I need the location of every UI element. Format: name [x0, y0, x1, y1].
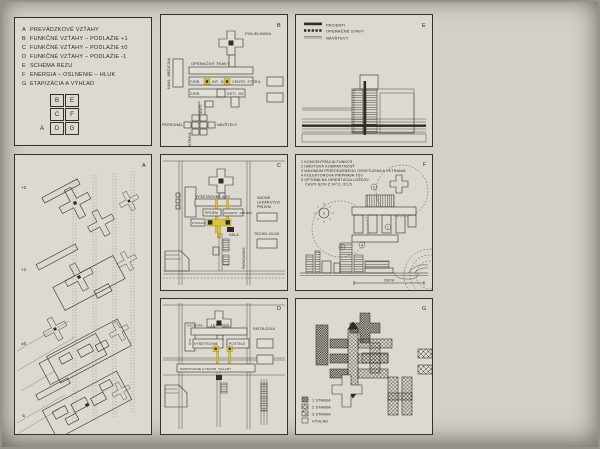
entry-cluster: PACIENTI PERSONÁL NÁVŠTEVY STRAVA: [162, 101, 238, 146]
label-prijem: PRÍJEM: [205, 211, 218, 215]
phasing-diagram: [316, 313, 432, 415]
vyhlad-swatch: [302, 418, 308, 423]
label-personal: PERSONÁL: [162, 123, 183, 127]
plan-buildings: RTG KUCHYŇA LEKÁREŇ VYŠETROVNE POSTELE P…: [165, 311, 275, 427]
panel-g: G: [295, 298, 433, 435]
panel-b: B POLIKLINIKA OPERAČNÝ TRAKT NUKL. MEDIC…: [160, 14, 288, 147]
legend-stavba3: 3 STAVBA: [312, 413, 331, 417]
scale-bar: 200 M: [354, 279, 424, 286]
main-wings: OPERAČNÝ TRAKT NUKL. MEDICÍNA CHIR. INT.…: [167, 57, 283, 107]
level-label-zero: ±0: [21, 341, 27, 346]
label-patologia: PATOLÓGIA: [253, 326, 275, 331]
axonometric-levels: [17, 179, 142, 434]
label-kuchyna: KUCHYŇA: [187, 323, 203, 328]
index-label: FUNKČNÉ VZŤAHY – PODLAŽIE -1: [30, 53, 126, 62]
index-item: BFUNKČNÉ VZŤAHY – PODLAŽIE +1: [22, 35, 146, 44]
notes-list: 1 KONCENTRÁCIA FUNKCIÍ 2 HMOTOVÁ KOMPAKT…: [301, 160, 406, 187]
label-urgent-prijem: URGENT. PRÍJEM: [224, 211, 252, 215]
grid-cell-a: A: [35, 122, 49, 135]
index-key: D: [22, 53, 30, 62]
note-5b: ČASTI SZ/V-Z 24°/J, 3/1,5: [305, 182, 352, 187]
grid-cell-c: C: [50, 108, 64, 121]
stavba1-swatch: [302, 397, 308, 402]
sheet-index-list: APREVÁDZKOVÉ VZŤAHY BFUNKČNÉ VZŤAHY – PO…: [15, 18, 151, 89]
index-item: ESCHÉMA REZU: [22, 62, 146, 71]
index-key: F: [22, 71, 30, 80]
panel-letter: G: [422, 306, 426, 312]
label-sudne: SÚDNE: [257, 195, 271, 200]
stavba2-swatch: [302, 404, 308, 409]
label-parkovanie: PARKOVANIE: [242, 247, 246, 269]
grid-cell-empty: [35, 108, 49, 121]
index-item: FENERGIA – OSLNENIE – HLUK: [22, 71, 146, 80]
label-poliklinika: POLIKLINIKA: [245, 31, 271, 36]
index-panel: APREVÁDZKOVÉ VZŤAHY BFUNKČNÉ VZŤAHY – PO…: [14, 17, 152, 146]
index-item: CFUNKČNÉ VZŤAHY – PODLAŽIE ±0: [22, 44, 146, 53]
marker-2: 2: [373, 185, 375, 189]
note-3: 3 MAXIMUM PRIRODZENÉHO OSVETLENIA A VETR…: [301, 168, 406, 173]
panel-a: A +2 +1 ±0 -1: [14, 154, 152, 435]
label-centr-steril: CENTR. STERIL.: [232, 80, 262, 84]
label-lekaren: LEKÁREŇ: [211, 324, 229, 328]
note-2: 2 HMOTOVÁ KOMPAKTNOSŤ: [301, 164, 355, 169]
index-item: DFUNKČNÉ VZŤAHY – PODLAŽIE -1: [22, 53, 146, 62]
note-1: 1 KONCENTRÁCIA FUNKCIÍ: [301, 160, 353, 164]
panel-letter: A: [142, 163, 146, 169]
drawing-sheet: APREVÁDZKOVÉ VZŤAHY BFUNKČNÉ VZŤAHY – PO…: [0, 0, 600, 449]
panel-letter: C: [277, 163, 281, 169]
building-section: [302, 75, 426, 142]
elevation-strip: [300, 243, 428, 279]
legend-navstevy: NÁVŠTEVY: [326, 36, 349, 41]
legend-pacienti: PACIENTI: [326, 23, 345, 28]
index-label: ENERGIA – OSLNENIE – HLUK: [30, 71, 115, 80]
label-vysetrovne: VYŠETROVNE: [194, 341, 219, 346]
plan-buildings: VYŠETROVNE ARO PRÍJEM URGENT. PRÍJEM STR…: [165, 169, 280, 271]
label-strava: STRAVA: [192, 221, 206, 225]
grid-cell-g: G: [65, 122, 79, 135]
stavba3-swatch: [302, 411, 308, 416]
marker-1: 1: [387, 225, 389, 229]
index-label: FUNKČNÉ VZŤAHY – PODLAŽIE +1: [30, 35, 128, 44]
panel-c: C VYŠETROVNE ARO PRÍJEM URGENT. PRÍJEM: [160, 154, 288, 291]
section-legend: PACIENTI OPERAČNÉ STAVY NÁVŠTEVY: [304, 23, 364, 41]
panel-letter: B: [277, 23, 281, 29]
index-key: E: [22, 62, 30, 71]
marker-4: 4: [361, 243, 363, 247]
panel-letter: D: [277, 306, 281, 312]
label-operacny-trakt: OPERAČNÝ TRAKT: [191, 61, 230, 66]
index-key: A: [22, 26, 30, 35]
level-label-minus1: -1: [21, 413, 26, 418]
label-lekarstvo: LEKÁRSTVO: [257, 201, 280, 205]
label-postele: POSTELE: [229, 342, 246, 346]
panel-letter: F: [423, 162, 427, 168]
phasing-legend: 1 STAVBA 2 STAVBA 3 STAVBA VÝHĽAD: [302, 397, 331, 424]
label-strava: STRAVA: [188, 131, 192, 146]
label-rtg: RTG: [188, 338, 192, 345]
sun-icon: 3: [314, 203, 334, 223]
sheet-key-grid: B E C F A D G: [35, 94, 79, 135]
label-chir-1: CHIR.: [190, 80, 201, 84]
grid-cell-e: E: [65, 94, 79, 107]
panel-d: D RTG KUCHYŇA LEKÁREŇ VYŠETROVNE POSTELE: [160, 298, 288, 435]
label-vysetrovne-aro: VYŠETROVNE ARO: [195, 194, 230, 199]
grid-cell-d: D: [50, 122, 64, 135]
index-key: B: [22, 35, 30, 44]
index-label: PREVÁDZKOVÉ VZŤAHY: [30, 26, 99, 35]
label-sala: SÁLA: [229, 233, 239, 237]
label-prijem-2: PRÍJEM: [257, 205, 271, 209]
index-item: GETAPIZÁCIA A VÝHĽAD: [22, 80, 146, 89]
index-label: SCHÉMA REZU: [30, 62, 72, 71]
label-nukl-medicina: NUKL. MEDICÍNA: [167, 57, 171, 89]
scale-label: 200 M: [384, 279, 394, 283]
grid-cell-f: F: [65, 108, 79, 121]
index-item: APREVÁDZKOVÉ VZŤAHY: [22, 26, 146, 35]
label-deti-jis: DETI. JIS: [227, 92, 244, 96]
panel-letter: E: [422, 23, 426, 29]
label-chir-2: CHIR.: [190, 92, 201, 96]
grid-cell-b: B: [50, 94, 64, 107]
legend-operacne-stavy: OPERAČNÉ STAVY: [326, 29, 364, 34]
note-5: 5 OPTIMÁLNA ORIENTÁCIA LÔŽKOV.: [301, 177, 370, 182]
index-key: C: [22, 44, 30, 53]
note-4: 4 KOLEKTOROVÁ PRÍPRAVA TÚV: [301, 173, 363, 178]
level-label-plus2: +2: [21, 185, 27, 190]
index-key: G: [22, 80, 30, 89]
legend-stavba2: 2 STAVBA: [312, 406, 331, 410]
navstevy-line-icon: [304, 36, 322, 38]
label-parkovanie-sklady: PARKOVANIE A TECHN. SKLADY: [180, 367, 232, 371]
label-techn-blok: TECHN. BLOK: [254, 232, 280, 236]
level-label-plus1: +1: [21, 267, 27, 272]
legend-stavba1: 1 STAVBA: [312, 399, 331, 403]
panel-e: E PACIENTI OPERAČNÉ STAVY NÁVŠTEVY: [295, 14, 433, 147]
index-label: ETAPIZÁCIA A VÝHĽAD: [30, 80, 94, 89]
panel-f: F 1 KONCENTRÁCIA FUNKCIÍ 2 HMOTOVÁ KOMPA…: [295, 154, 433, 291]
marker-3: 3: [323, 212, 325, 216]
label-navstevy: NÁVŠTEVY: [217, 122, 238, 127]
index-label: FUNKČNÉ VZŤAHY – PODLAŽIE ±0: [30, 44, 128, 53]
grid-cell-empty: [35, 94, 49, 107]
legend-vyhlad: VÝHĽAD: [312, 420, 328, 424]
pacienti-line-icon: [304, 23, 322, 26]
